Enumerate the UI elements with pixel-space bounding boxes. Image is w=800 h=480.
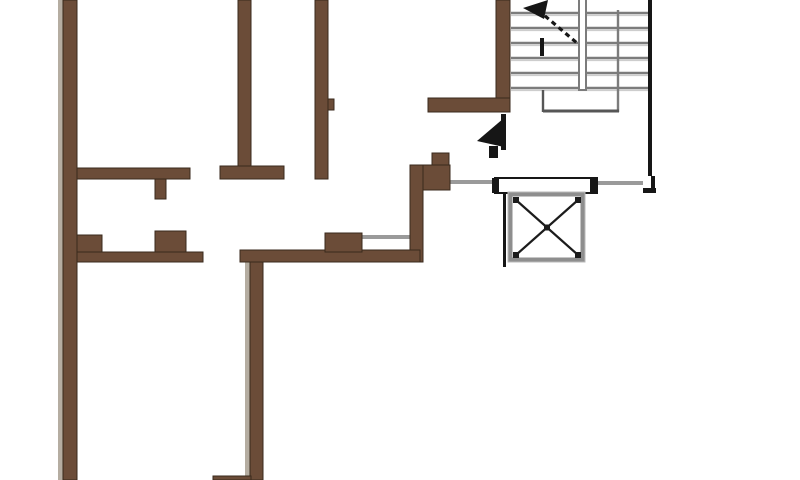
floor-plan-drawing — [0, 0, 800, 480]
top-interior-wall-3 — [315, 0, 328, 179]
elevator-x-node — [513, 252, 519, 258]
elevator-door-frame-cap — [492, 178, 499, 193]
stair-right-wall-jog — [651, 176, 655, 190]
lower-wall-pier-mid — [325, 233, 362, 252]
elevator-x-node — [575, 252, 581, 258]
elevator-door-frame-cap — [590, 178, 597, 193]
lower-vertical-wall — [250, 262, 263, 480]
corridor-opening-right — [597, 181, 643, 185]
mid-band-left-segment — [77, 168, 190, 179]
top-interior-wall-2 — [238, 0, 251, 168]
lower-vertical-shadow-strip — [245, 262, 250, 480]
stair-right-wall-foot — [643, 188, 656, 193]
corridor-corner-top — [432, 153, 449, 166]
mid-band-stub — [155, 179, 166, 199]
corridor-opening-left — [448, 180, 497, 184]
lower-wall-pier-left — [77, 235, 102, 252]
corridor-vertical-wall — [410, 165, 423, 262]
mid-band-right-segment — [220, 166, 284, 179]
elevator-x-node — [544, 225, 550, 231]
elevator-door-frame — [495, 178, 597, 193]
stair-bottom-wall — [428, 98, 510, 112]
left-wall-shadow-strip — [58, 0, 63, 480]
elevator-x-node — [575, 197, 581, 203]
entrance-arrow-foot — [489, 146, 498, 158]
stair-left-wall — [496, 0, 510, 112]
shaft-left-line — [503, 192, 506, 267]
lower-wall-pier-center — [155, 231, 186, 252]
entrance-arrow-bar — [501, 114, 506, 150]
lower-wall-left-segment — [77, 252, 203, 262]
wall-3-tick — [328, 99, 334, 110]
bottom-edge-stub — [213, 476, 251, 480]
elevator-x-node — [513, 197, 519, 203]
stair-right-wall — [648, 0, 652, 176]
plan-background — [0, 0, 800, 480]
left-exterior-wall — [63, 0, 77, 480]
interior-opening — [362, 235, 410, 239]
floor-plan — [0, 0, 800, 480]
